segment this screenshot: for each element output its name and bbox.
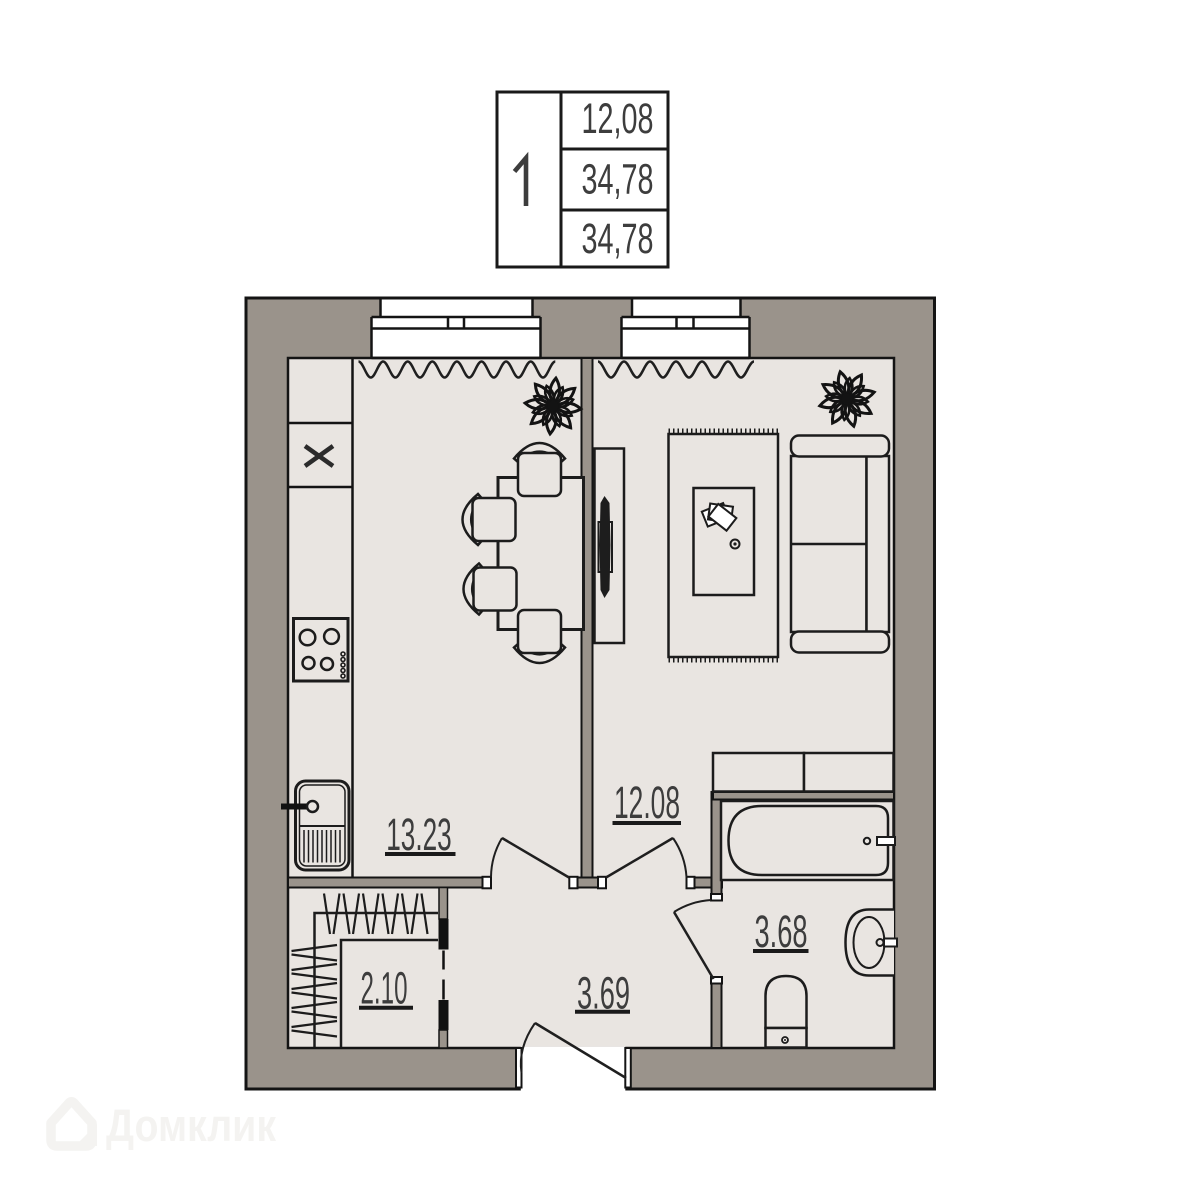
svg-text:12.08: 12.08 bbox=[614, 777, 680, 828]
svg-text:34,78: 34,78 bbox=[582, 156, 654, 204]
svg-text:12,08: 12,08 bbox=[582, 95, 654, 143]
svg-text:Домклик: Домклик bbox=[106, 1100, 276, 1151]
svg-text:34,78: 34,78 bbox=[582, 215, 654, 263]
